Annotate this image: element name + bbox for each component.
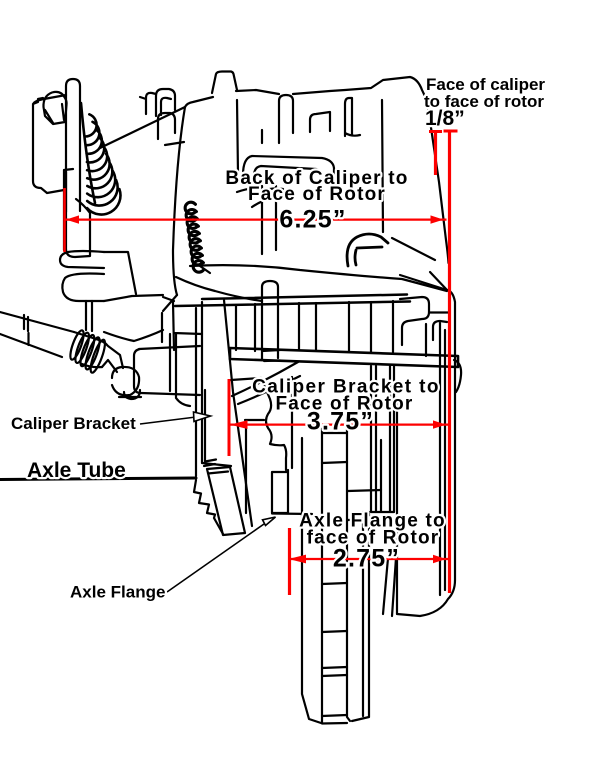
svg-text:3.75”: 3.75” bbox=[307, 408, 374, 436]
svg-text:Axle Tube: Axle Tube bbox=[27, 459, 126, 482]
svg-text:Face of Rotor: Face of Rotor bbox=[248, 184, 386, 205]
svg-text:1/8”: 1/8” bbox=[425, 107, 465, 130]
svg-text:Caliper Bracket: Caliper Bracket bbox=[11, 414, 136, 433]
svg-text:Axle Flange: Axle Flange bbox=[70, 583, 165, 602]
svg-text:2.75”: 2.75” bbox=[333, 545, 400, 573]
svg-text:6.25”: 6.25” bbox=[279, 206, 346, 234]
